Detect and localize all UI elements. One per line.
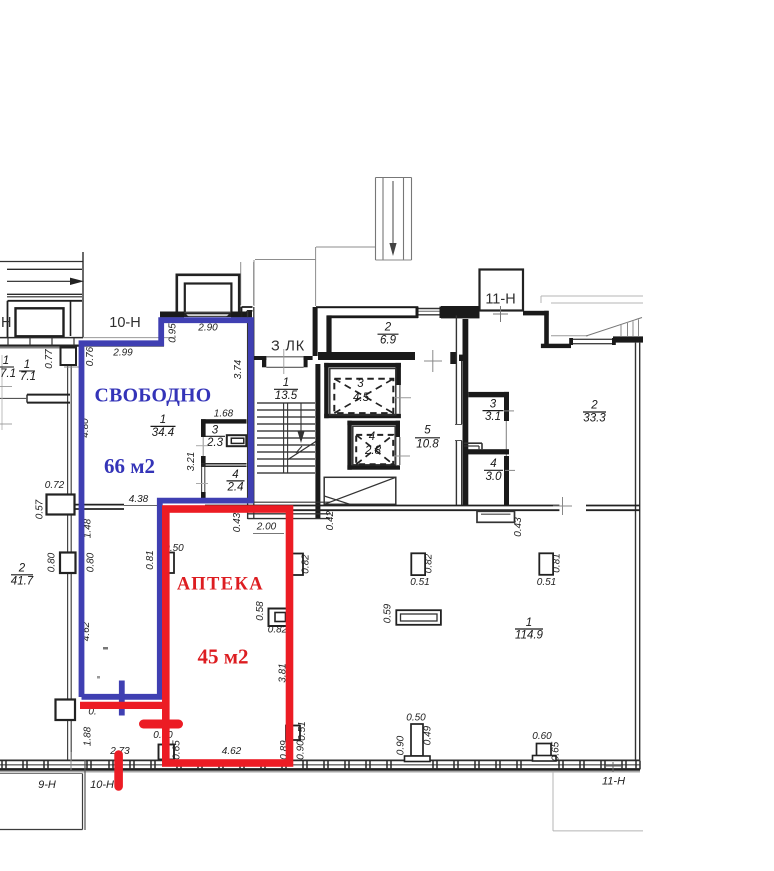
svg-text:3: 3: [490, 399, 497, 411]
svg-text:7.1: 7.1: [20, 371, 36, 383]
svg-text:0.81: 0.81: [145, 550, 156, 569]
svg-text:2.3: 2.3: [206, 437, 224, 449]
svg-text:66 м2: 66 м2: [104, 454, 155, 478]
svg-text:0.51: 0.51: [297, 721, 308, 740]
svg-text:1.88: 1.88: [83, 726, 94, 746]
svg-text:3.21: 3.21: [186, 452, 197, 471]
svg-text:0.51: 0.51: [410, 577, 429, 588]
svg-text:0.65: 0.65: [172, 740, 183, 760]
svg-text:11-Н: 11-Н: [485, 292, 515, 308]
svg-text:0.95: 0.95: [168, 323, 179, 343]
svg-text:2.00: 2.00: [256, 522, 277, 533]
svg-text:41.7: 41.7: [11, 575, 34, 587]
svg-text:3.74: 3.74: [233, 359, 244, 379]
svg-text:0.82: 0.82: [268, 625, 288, 636]
svg-text:0.90: 0.90: [396, 735, 407, 755]
svg-text:3.0: 3.0: [486, 471, 503, 483]
svg-text:0.59: 0.59: [383, 603, 394, 623]
svg-text:Н: Н: [1, 315, 11, 331]
svg-text:2.4: 2.4: [227, 481, 244, 493]
svg-text:0.43: 0.43: [232, 512, 243, 532]
svg-text:АПТЕКА: АПТЕКА: [177, 575, 264, 595]
svg-text:3.1: 3.1: [485, 411, 501, 423]
svg-text:114.9: 114.9: [515, 630, 544, 642]
svg-text:0.58: 0.58: [255, 601, 266, 621]
svg-text:4.5: 4.5: [353, 392, 370, 404]
svg-text:0.57: 0.57: [35, 499, 46, 519]
svg-text:0.65: 0.65: [551, 741, 562, 761]
svg-text:11-Н: 11-Н: [602, 776, 625, 788]
svg-text:0.76: 0.76: [85, 346, 96, 366]
svg-text:13.5: 13.5: [275, 390, 298, 402]
svg-text:4: 4: [369, 431, 375, 443]
svg-text:0.77: 0.77: [44, 349, 55, 369]
svg-text:0.90: 0.90: [296, 740, 307, 760]
svg-text:1: 1: [160, 414, 166, 426]
svg-text:0.82: 0.82: [301, 554, 312, 574]
svg-text:1: 1: [526, 617, 532, 629]
svg-text:СВОБОДНО: СВОБОДНО: [95, 385, 212, 407]
svg-text:4.62: 4.62: [222, 746, 242, 757]
svg-text:0.82: 0.82: [424, 553, 435, 573]
svg-text:34.4: 34.4: [152, 427, 174, 439]
svg-text:2: 2: [384, 322, 392, 334]
svg-text:3: 3: [357, 378, 364, 390]
svg-text:0.49: 0.49: [423, 725, 434, 745]
svg-text:10.8: 10.8: [416, 438, 439, 450]
svg-text:3: 3: [212, 425, 219, 437]
svg-text:0.42: 0.42: [325, 510, 336, 530]
svg-text:0.81: 0.81: [552, 553, 563, 572]
svg-text:10-Н: 10-Н: [90, 779, 114, 791]
svg-text:2: 2: [18, 563, 26, 575]
svg-text:1: 1: [24, 359, 30, 371]
svg-text:0.43: 0.43: [513, 517, 524, 537]
svg-text:2: 2: [590, 400, 598, 412]
svg-text:4: 4: [232, 469, 238, 481]
svg-text:0.72: 0.72: [45, 480, 65, 491]
svg-text:0.50: 0.50: [406, 713, 426, 724]
svg-text:9-Н: 9-Н: [38, 779, 56, 791]
svg-text:4: 4: [490, 458, 496, 470]
svg-text:6.9: 6.9: [380, 335, 397, 347]
svg-text:7.1: 7.1: [0, 368, 16, 380]
svg-text:0.80: 0.80: [86, 552, 97, 572]
svg-text:10-Н: 10-Н: [109, 315, 140, 331]
svg-text:1.68: 1.68: [214, 409, 234, 420]
svg-text:0.51: 0.51: [537, 577, 556, 588]
svg-text:4.38: 4.38: [129, 494, 149, 505]
svg-text:1: 1: [3, 355, 9, 367]
svg-text:0.60: 0.60: [532, 731, 552, 742]
svg-text:2.8: 2.8: [364, 445, 382, 457]
svg-text:2.90: 2.90: [197, 323, 218, 334]
svg-text:33.3: 33.3: [583, 413, 606, 425]
svg-text:1: 1: [283, 377, 289, 389]
svg-text:5: 5: [424, 425, 431, 437]
svg-text:45 м2: 45 м2: [197, 645, 248, 669]
svg-text:0.80: 0.80: [47, 552, 58, 572]
svg-text:З ЛК: З ЛК: [271, 339, 305, 355]
svg-text:2.99: 2.99: [112, 348, 133, 359]
